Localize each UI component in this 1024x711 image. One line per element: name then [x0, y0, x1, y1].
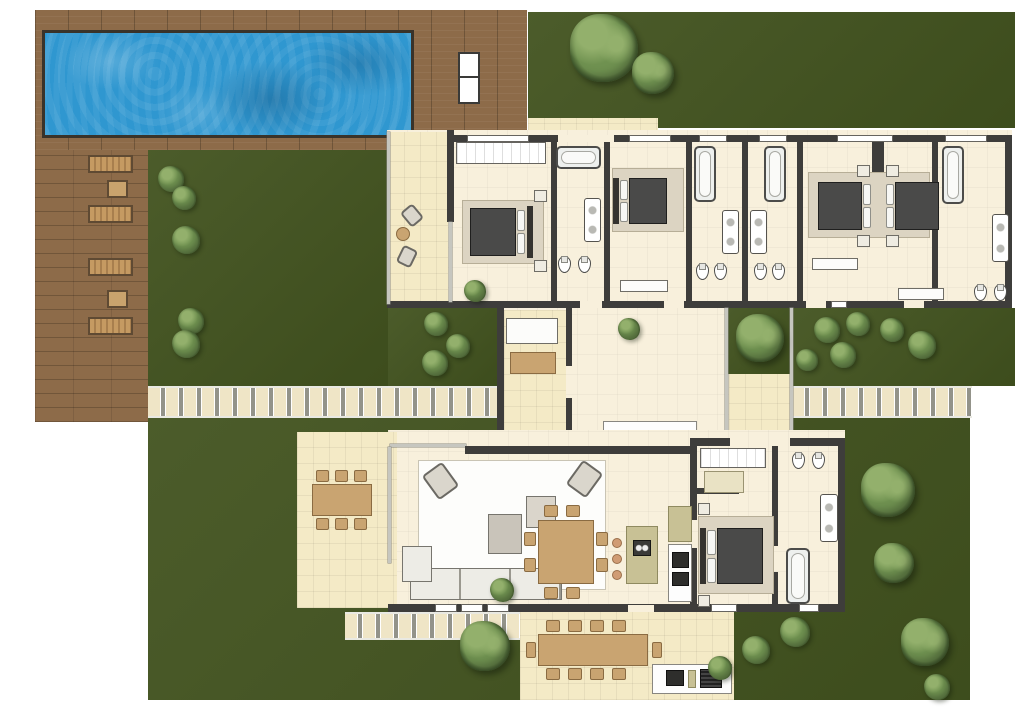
window-north-4: [760, 136, 786, 141]
shrub-east-6: [796, 349, 818, 371]
terrace-edge-glass: [387, 132, 390, 304]
shrub-south-4: [924, 674, 950, 700]
shrub-garden-1: [424, 312, 448, 336]
plant-bedroom1: [464, 280, 486, 302]
stepping-path-west: [148, 386, 498, 418]
west-chair-1: [316, 470, 329, 482]
entry-coffee-table: [510, 352, 556, 374]
bathroom4-bathtub: [942, 146, 964, 204]
master-wardrobe: [700, 448, 766, 468]
bedroom2-bed-mattress: [629, 178, 667, 224]
tree-north-2: [632, 52, 674, 94]
fridge-icon: [672, 572, 689, 586]
tree-north-1: [570, 14, 638, 82]
bedroom34-nightstand-4: [886, 235, 899, 247]
floor-plan: [0, 0, 1024, 711]
shrub-west-2: [172, 186, 196, 210]
bathroom4-double-sink: [992, 214, 1009, 262]
bedroom3-pillow-1: [863, 184, 871, 205]
bar-stool-1: [612, 538, 622, 548]
west-terrace-table: [312, 484, 372, 516]
bedroom2-pillow-2: [620, 202, 628, 222]
door-gap-terrace: [628, 605, 654, 612]
master-nightstand-1: [698, 503, 710, 515]
oven-icon: [672, 552, 689, 568]
bedroom4-pillow-2: [886, 207, 894, 228]
window-south-3: [488, 605, 508, 611]
bedroom2-headboard: [613, 178, 619, 224]
bedroom34-nightstand-3: [857, 235, 870, 247]
kitchen-tall-cabinet: [668, 506, 692, 542]
entry-bench: [506, 318, 558, 344]
bedroom4-bed-mattress: [895, 182, 939, 230]
bedroom34-nightstand-1: [857, 165, 870, 177]
bedroom3-bed-mattress: [818, 182, 862, 230]
shrub-west-5: [172, 330, 200, 358]
bedroom1-pillow-1: [517, 210, 525, 231]
shrub-south-2: [742, 636, 770, 664]
bedroom1-nightstand-1: [534, 190, 547, 202]
dining-chair-4: [566, 587, 580, 599]
south-chair-5: [546, 668, 560, 680]
sun-lounger-3: [88, 258, 133, 276]
sun-lounger-1: [88, 155, 133, 173]
shrub-east-2: [846, 312, 870, 336]
wall-south-wing-east: [838, 438, 845, 612]
master-nightstand-2: [698, 595, 710, 607]
glass-terrace-bedroom1: [449, 222, 452, 302]
stepping-path-east: [792, 386, 972, 418]
sofa-corner: [402, 546, 432, 582]
west-chair-3: [354, 470, 367, 482]
west-chair-5: [335, 518, 348, 530]
bar-stool-3: [612, 570, 622, 580]
white-pool-lounger: [458, 52, 480, 104]
window-north-1: [468, 136, 528, 141]
bathroom2-bathtub: [694, 146, 716, 202]
bathroom1-double-sink: [584, 198, 601, 242]
terrace-round-table: [396, 227, 410, 241]
west-chair-6: [354, 518, 367, 530]
wall-bath3-bedroom34: [797, 135, 803, 301]
shrub-garden-2: [446, 334, 470, 358]
bedroom1-headboard: [527, 206, 533, 258]
south-chair-10: [652, 642, 662, 658]
south-chair-4: [612, 620, 626, 632]
tree-southeast-1: [861, 463, 915, 517]
window-north-2: [630, 136, 670, 141]
bedroom1-wardrobe: [456, 142, 546, 164]
window-south-2: [462, 605, 482, 611]
sun-lounger-2: [88, 205, 133, 223]
shrub-east-4: [880, 318, 904, 342]
side-deck: [35, 150, 148, 422]
south-chair-8: [612, 668, 626, 680]
master-pillow-2: [707, 558, 716, 583]
dining-chair-1: [544, 505, 558, 517]
south-chair-3: [590, 620, 604, 632]
bedroom4-pillow-1: [886, 184, 894, 205]
south-chair-2: [568, 620, 582, 632]
tree-south-1: [460, 621, 510, 671]
island-sink: [633, 540, 651, 556]
wall-terrace-bedroom1: [447, 130, 454, 222]
plant-hall: [618, 318, 640, 340]
south-chair-7: [590, 668, 604, 680]
window-north-5: [838, 136, 892, 141]
bedroom1-bed-mattress: [470, 208, 516, 256]
dining-chair-7: [596, 532, 608, 546]
west-chair-4: [316, 518, 329, 530]
tree-southeast-2: [874, 543, 914, 583]
window-south-5: [800, 605, 818, 611]
south-chair-1: [546, 620, 560, 632]
dining-chair-8: [596, 558, 608, 572]
window-north-6: [946, 136, 986, 141]
shrub-south-3: [708, 656, 732, 680]
dining-chair-6: [524, 558, 536, 572]
shrub-east-1: [814, 317, 840, 343]
bedroom1-pillow-2: [517, 233, 525, 254]
south-chair-9: [526, 642, 536, 658]
deck-side-table-1: [107, 180, 128, 198]
shrub-west-3: [172, 226, 200, 254]
door-gap-hall-4: [904, 301, 924, 308]
west-chair-2: [335, 470, 348, 482]
shrub-east-5: [908, 331, 936, 359]
outdoor-cabinet: [688, 670, 696, 688]
swimming-pool: [42, 30, 414, 138]
plant-living: [490, 578, 514, 602]
shrub-east-3: [830, 342, 856, 368]
bedroom3-pillow-2: [863, 207, 871, 228]
wall-entry-east-1: [566, 308, 572, 366]
bathroom3-double-sink: [750, 210, 767, 254]
wall-bath2-bath3: [742, 135, 748, 301]
living-glass-west: [388, 447, 391, 563]
window-north-3: [700, 136, 726, 141]
door-gap-hall-3: [806, 301, 826, 308]
wall-living-north: [465, 446, 690, 454]
wall-suite-north-2: [790, 438, 845, 446]
south-terrace-table: [538, 634, 648, 666]
master-bed-mattress: [717, 528, 763, 584]
dining-chair-5: [524, 532, 536, 546]
bedroom2-bench: [620, 280, 668, 292]
door-gap-hall-1: [580, 301, 602, 308]
bedroom4-bench: [898, 288, 944, 300]
wall-bath1-bedroom2: [604, 135, 610, 301]
dining-chair-2: [566, 505, 580, 517]
bedroom34-nightstand-2: [886, 165, 899, 177]
deck-side-table-2: [107, 290, 128, 308]
shrub-south-1: [780, 617, 810, 647]
outdoor-cooktop-icon: [666, 670, 684, 686]
entry-door-gap: [558, 135, 614, 142]
tree-south-2: [901, 618, 949, 666]
master-pillow-1: [707, 530, 716, 555]
master-bathtub: [786, 548, 810, 604]
window-south-1: [436, 605, 456, 611]
sun-lounger-4: [88, 317, 133, 335]
shrub-garden-3: [422, 350, 448, 376]
bathroom2-double-sink: [722, 210, 739, 254]
window-south-4: [712, 605, 736, 611]
living-glass-north: [390, 444, 466, 447]
dining-table: [538, 520, 594, 584]
wall-suite-north-1: [690, 438, 730, 446]
wall-bedroom2-bath2: [686, 135, 692, 301]
south-chair-6: [568, 668, 582, 680]
bedroom1-nightstand-2: [534, 260, 547, 272]
bedroom3-bench: [812, 258, 858, 270]
master-double-sink: [820, 494, 838, 542]
window-south-wing-a: [832, 302, 846, 307]
bar-stool-2: [612, 554, 622, 564]
bedroom2-pillow-1: [620, 180, 628, 200]
wall-north: [447, 135, 1012, 142]
dining-chair-3: [544, 587, 558, 599]
door-gap-hall-2: [664, 301, 684, 308]
coffee-table-1: [488, 514, 522, 554]
bathroom3-bathtub: [764, 146, 786, 202]
courtyard-tree: [736, 314, 784, 362]
bathroom1-bathtub: [556, 146, 601, 169]
master-headboard: [700, 528, 706, 584]
closet-bench: [704, 471, 744, 493]
